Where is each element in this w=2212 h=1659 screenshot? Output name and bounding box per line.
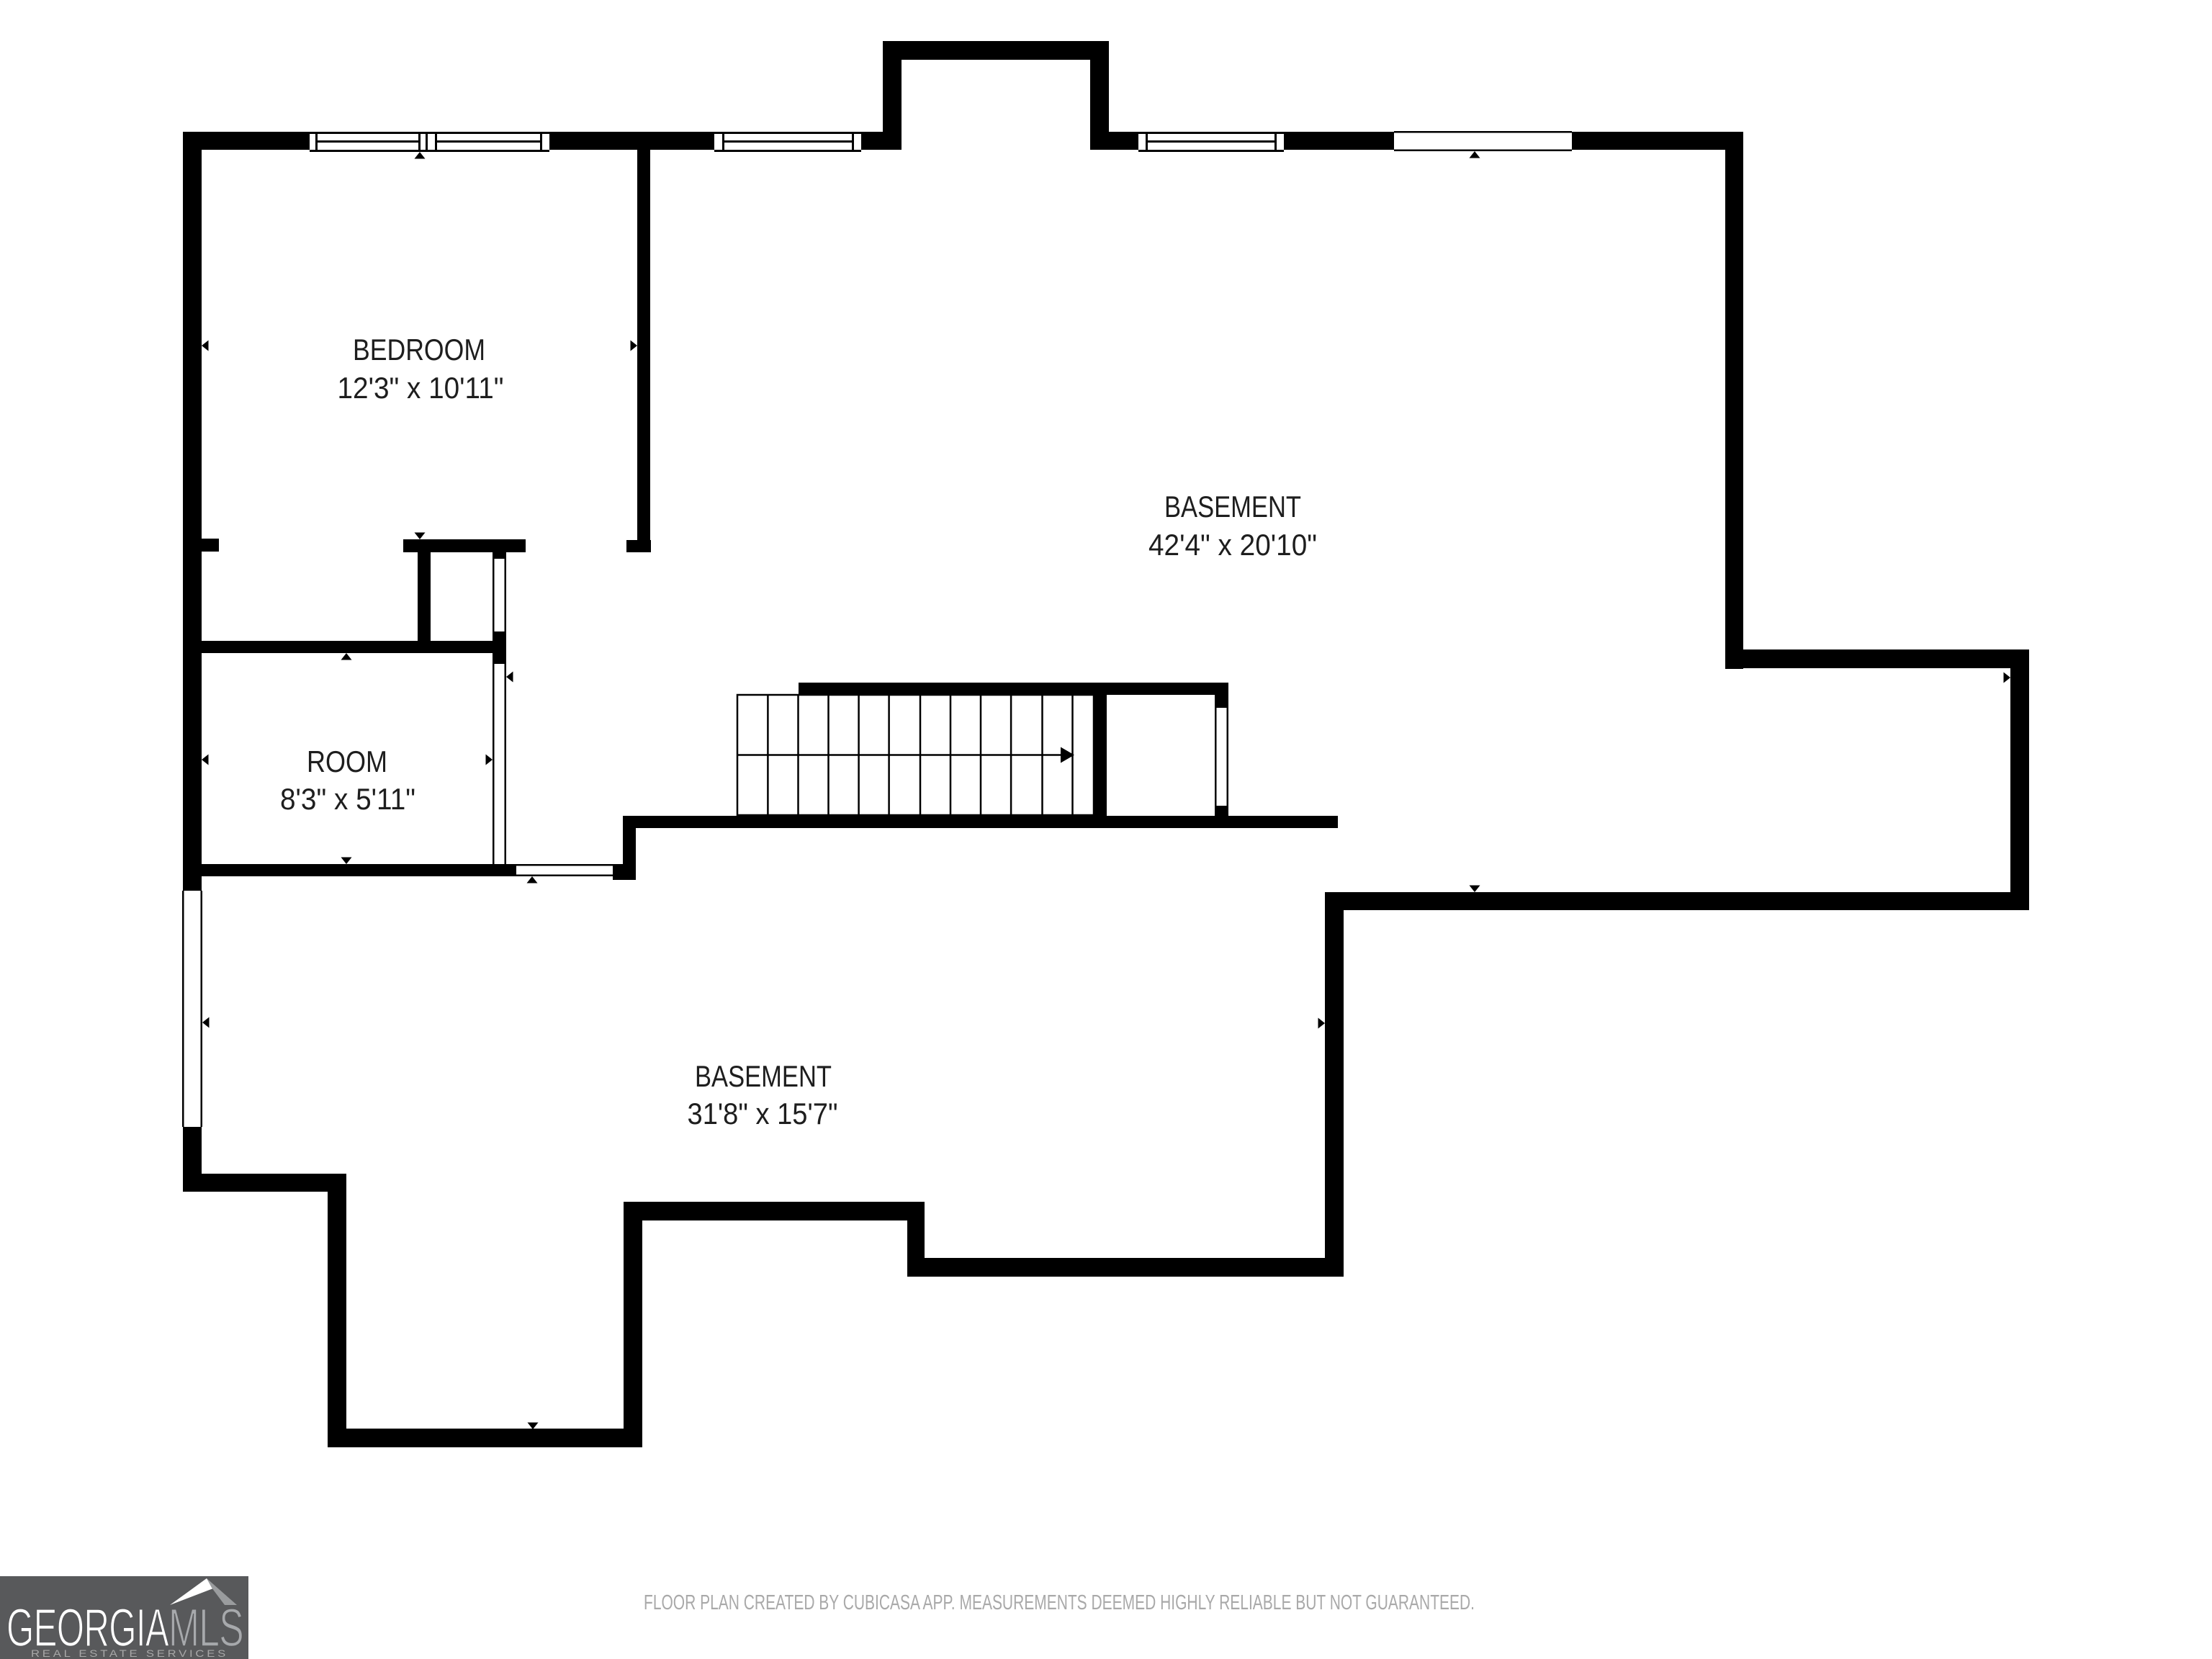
svg-text:REAL ESTATE SERVICES: REAL ESTATE SERVICES — [31, 1647, 228, 1659]
svg-text:BASEMENT: BASEMENT — [1164, 490, 1301, 523]
svg-text:42'4" x 20'10": 42'4" x 20'10" — [1148, 528, 1317, 562]
svg-text:BEDROOM: BEDROOM — [353, 333, 485, 367]
svg-text:31'8" x 15'7": 31'8" x 15'7" — [688, 1097, 838, 1130]
svg-text:ROOM: ROOM — [307, 745, 387, 778]
svg-text:12'3" x 10'11": 12'3" x 10'11" — [338, 371, 504, 405]
svg-text:FLOOR PLAN CREATED BY CUBICASA: FLOOR PLAN CREATED BY CUBICASA APP. MEAS… — [644, 1591, 1475, 1614]
svg-text:8'3" x 5'11": 8'3" x 5'11" — [280, 782, 415, 816]
svg-text:BASEMENT: BASEMENT — [695, 1059, 832, 1093]
